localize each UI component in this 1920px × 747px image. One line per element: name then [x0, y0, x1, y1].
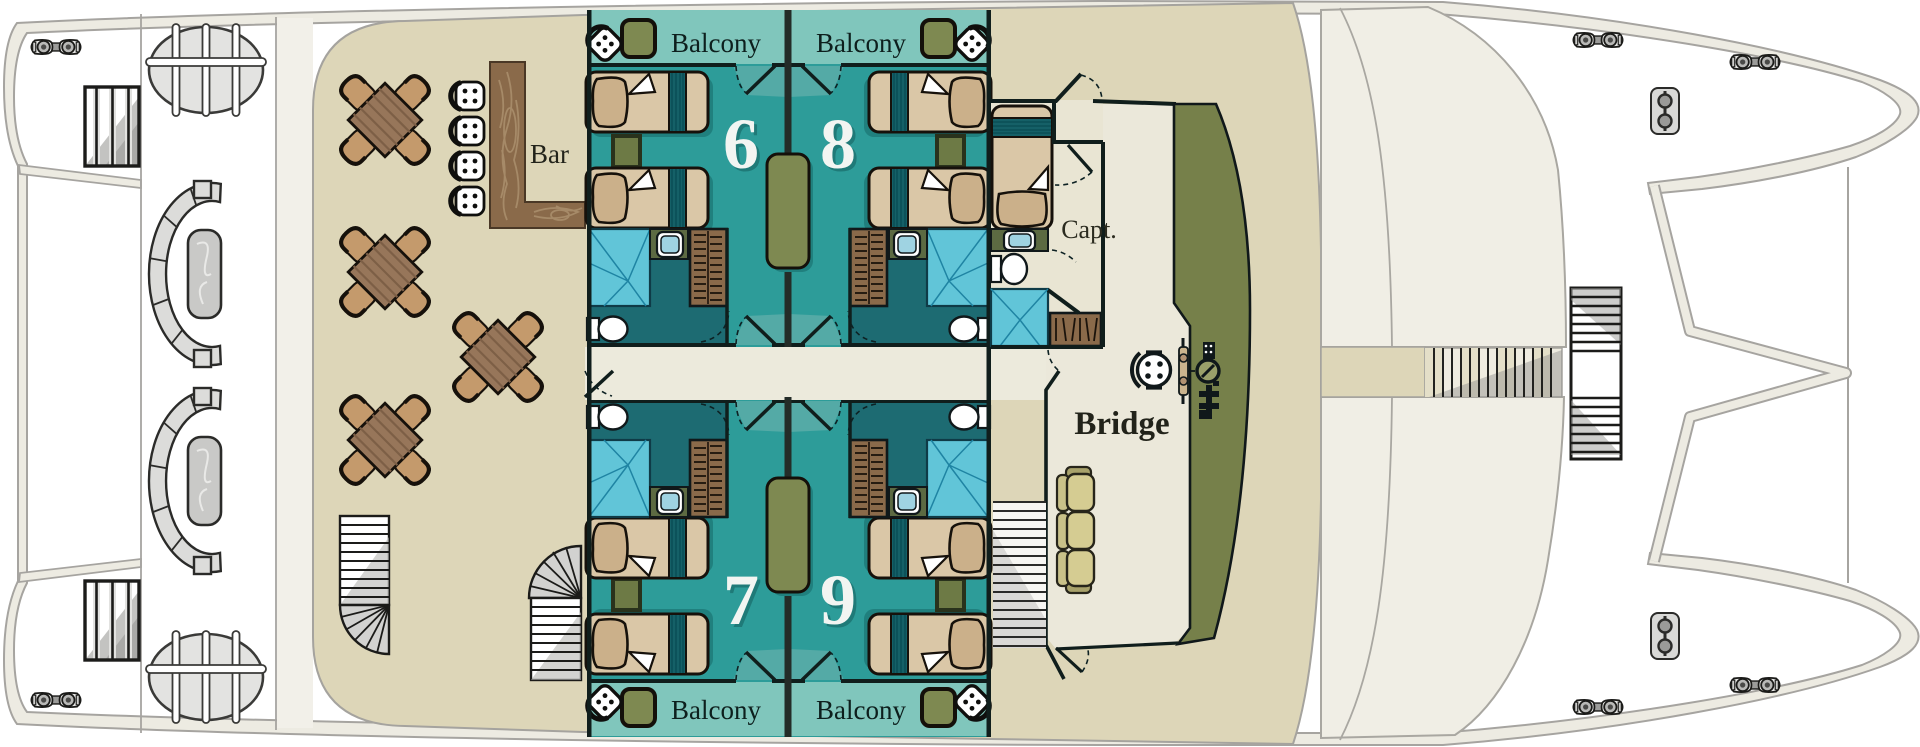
- svg-text:Capt.: Capt.: [1061, 215, 1117, 244]
- svg-text:6: 6: [723, 104, 759, 184]
- svg-text:Balcony: Balcony: [816, 28, 906, 58]
- svg-text:8: 8: [820, 104, 856, 184]
- svg-text:Balcony: Balcony: [671, 28, 761, 58]
- svg-text:Bar: Bar: [530, 139, 569, 169]
- svg-text:9: 9: [820, 560, 856, 640]
- svg-text:Balcony: Balcony: [816, 695, 906, 725]
- svg-text:7: 7: [723, 560, 759, 640]
- svg-text:Balcony: Balcony: [671, 695, 761, 725]
- svg-text:Bridge: Bridge: [1074, 406, 1169, 442]
